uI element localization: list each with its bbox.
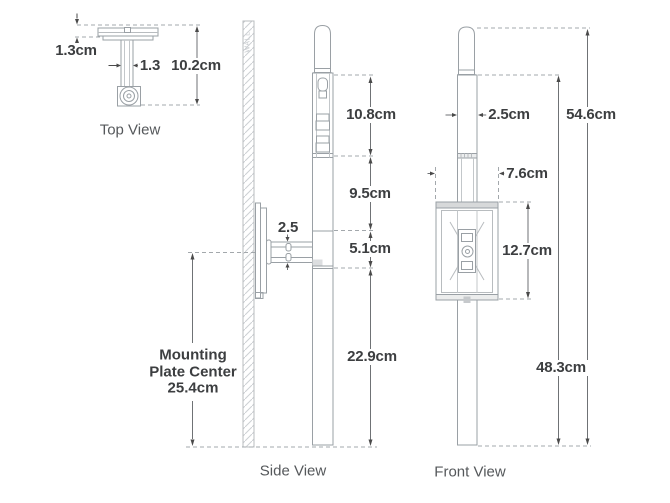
side-view-title: Side View — [260, 463, 326, 480]
dimension-diagram: 1.3cm 1.3 10.2cm Top View WALL 2.5 10.8c… — [0, 0, 670, 503]
mounting-label-line2: Plate Center — [149, 364, 237, 381]
dim-label-box-width: 7.6cm — [504, 166, 550, 182]
dim-label-overall-height: 54.6cm — [564, 107, 618, 123]
dim-label-bracket-section: 5.1cm — [347, 241, 393, 257]
mounting-plate-center-label: Mounting Plate Center 25.4cm — [146, 347, 240, 397]
dim-label-upper-section: 10.8cm — [344, 107, 398, 123]
support-arm — [267, 240, 314, 264]
front-view-drawing — [428, 27, 592, 446]
dim-label-plate-thickness: 1.3cm — [53, 43, 99, 59]
dim-label-stem-width: 1.3 — [138, 58, 162, 74]
dim-label-shaft-height: 48.3cm — [534, 360, 588, 376]
wall-section — [243, 21, 254, 447]
dim-label-post-width: 2.5cm — [486, 107, 532, 123]
diagram-drawing — [0, 0, 670, 503]
post-side — [313, 26, 334, 446]
wall-label: WALL — [245, 31, 252, 52]
dim-label-arm-thickness: 2.5 — [276, 220, 300, 236]
top-view-title: Top View — [100, 122, 161, 139]
mounting-label-line3: 25.4cm — [149, 380, 237, 397]
mounting-plate-side — [256, 203, 267, 299]
dim-label-box-height: 12.7cm — [500, 243, 554, 259]
dim-label-mid-section: 9.5cm — [347, 186, 393, 202]
dim-label-overall-depth: 10.2cm — [169, 58, 223, 74]
front-view-title: Front View — [434, 464, 505, 481]
lantern-box — [436, 202, 498, 303]
dim-label-lower-section: 22.9cm — [345, 349, 399, 365]
mounting-label-line1: Mounting — [149, 347, 237, 364]
